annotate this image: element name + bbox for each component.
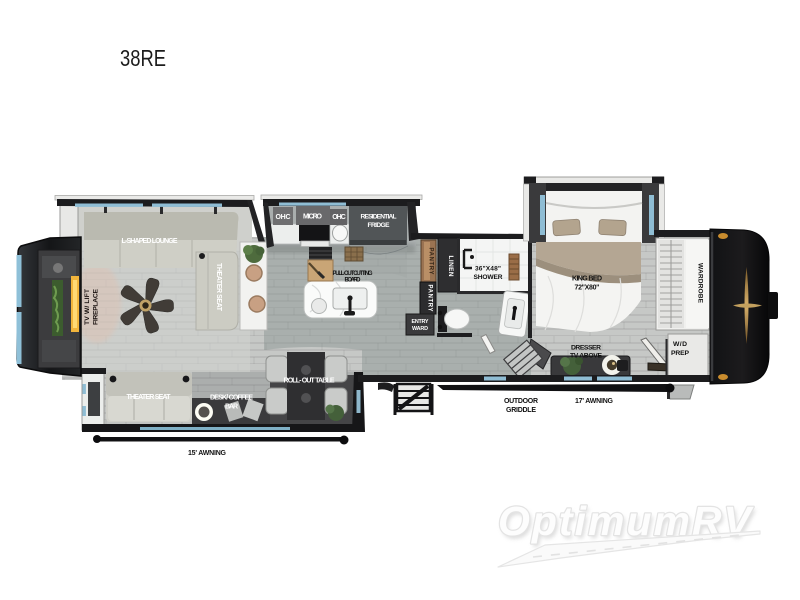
svg-text:PANTRY: PANTRY — [428, 248, 434, 275]
svg-text:MICRO: MICRO — [303, 214, 323, 221]
svg-text:FIREPLACE: FIREPLACE — [93, 289, 100, 325]
svg-text:GRIDDLE: GRIDDLE — [506, 407, 536, 414]
svg-text:TV ABOVE: TV ABOVE — [570, 353, 602, 360]
svg-text:RESIDENTIAL: RESIDENTIAL — [361, 214, 397, 221]
svg-text:OHC: OHC — [332, 214, 346, 221]
svg-text:TV W/ LIFT: TV W/ LIFT — [84, 288, 91, 325]
svg-text:BOARD: BOARD — [345, 278, 362, 284]
svg-text:W/D: W/D — [673, 341, 687, 348]
svg-text:ROLL- OUT TABLE: ROLL- OUT TABLE — [284, 378, 335, 385]
svg-text:THEATER SEAT: THEATER SEAT — [215, 263, 222, 312]
svg-text:38RE: 38RE — [120, 45, 166, 71]
svg-text:KING BED: KING BED — [572, 276, 602, 283]
svg-text:OHC: OHC — [276, 214, 291, 221]
svg-text:ENTRY: ENTRY — [412, 319, 429, 325]
svg-text:OUTDOOR: OUTDOOR — [504, 398, 538, 405]
svg-text:72"X80": 72"X80" — [575, 285, 600, 292]
svg-text:36"X48": 36"X48" — [475, 266, 501, 273]
svg-text:SHOWER: SHOWER — [474, 274, 503, 281]
svg-text:PULL-OUT CUTTING: PULL-OUT CUTTING — [333, 271, 373, 277]
svg-text:PANTRY: PANTRY — [427, 285, 433, 312]
svg-text:THEATER SEAT: THEATER SEAT — [127, 394, 172, 401]
svg-text:15' AWNING: 15' AWNING — [188, 450, 227, 457]
svg-text:WARD: WARD — [412, 326, 428, 332]
svg-text:DRESSER: DRESSER — [571, 345, 601, 352]
svg-text:DESK/ COFFEE: DESK/ COFFEE — [210, 395, 253, 402]
svg-text:L-SHAPED LOUNGE: L-SHAPED LOUNGE — [122, 238, 178, 245]
svg-text:17' AWNING: 17' AWNING — [575, 398, 614, 405]
svg-text:LINEN: LINEN — [447, 256, 454, 277]
svg-text:BAR: BAR — [225, 404, 238, 411]
svg-text:FRIDGE: FRIDGE — [368, 222, 391, 229]
svg-text:PREP: PREP — [671, 350, 689, 357]
svg-text:WARDROBE: WARDROBE — [697, 263, 704, 304]
